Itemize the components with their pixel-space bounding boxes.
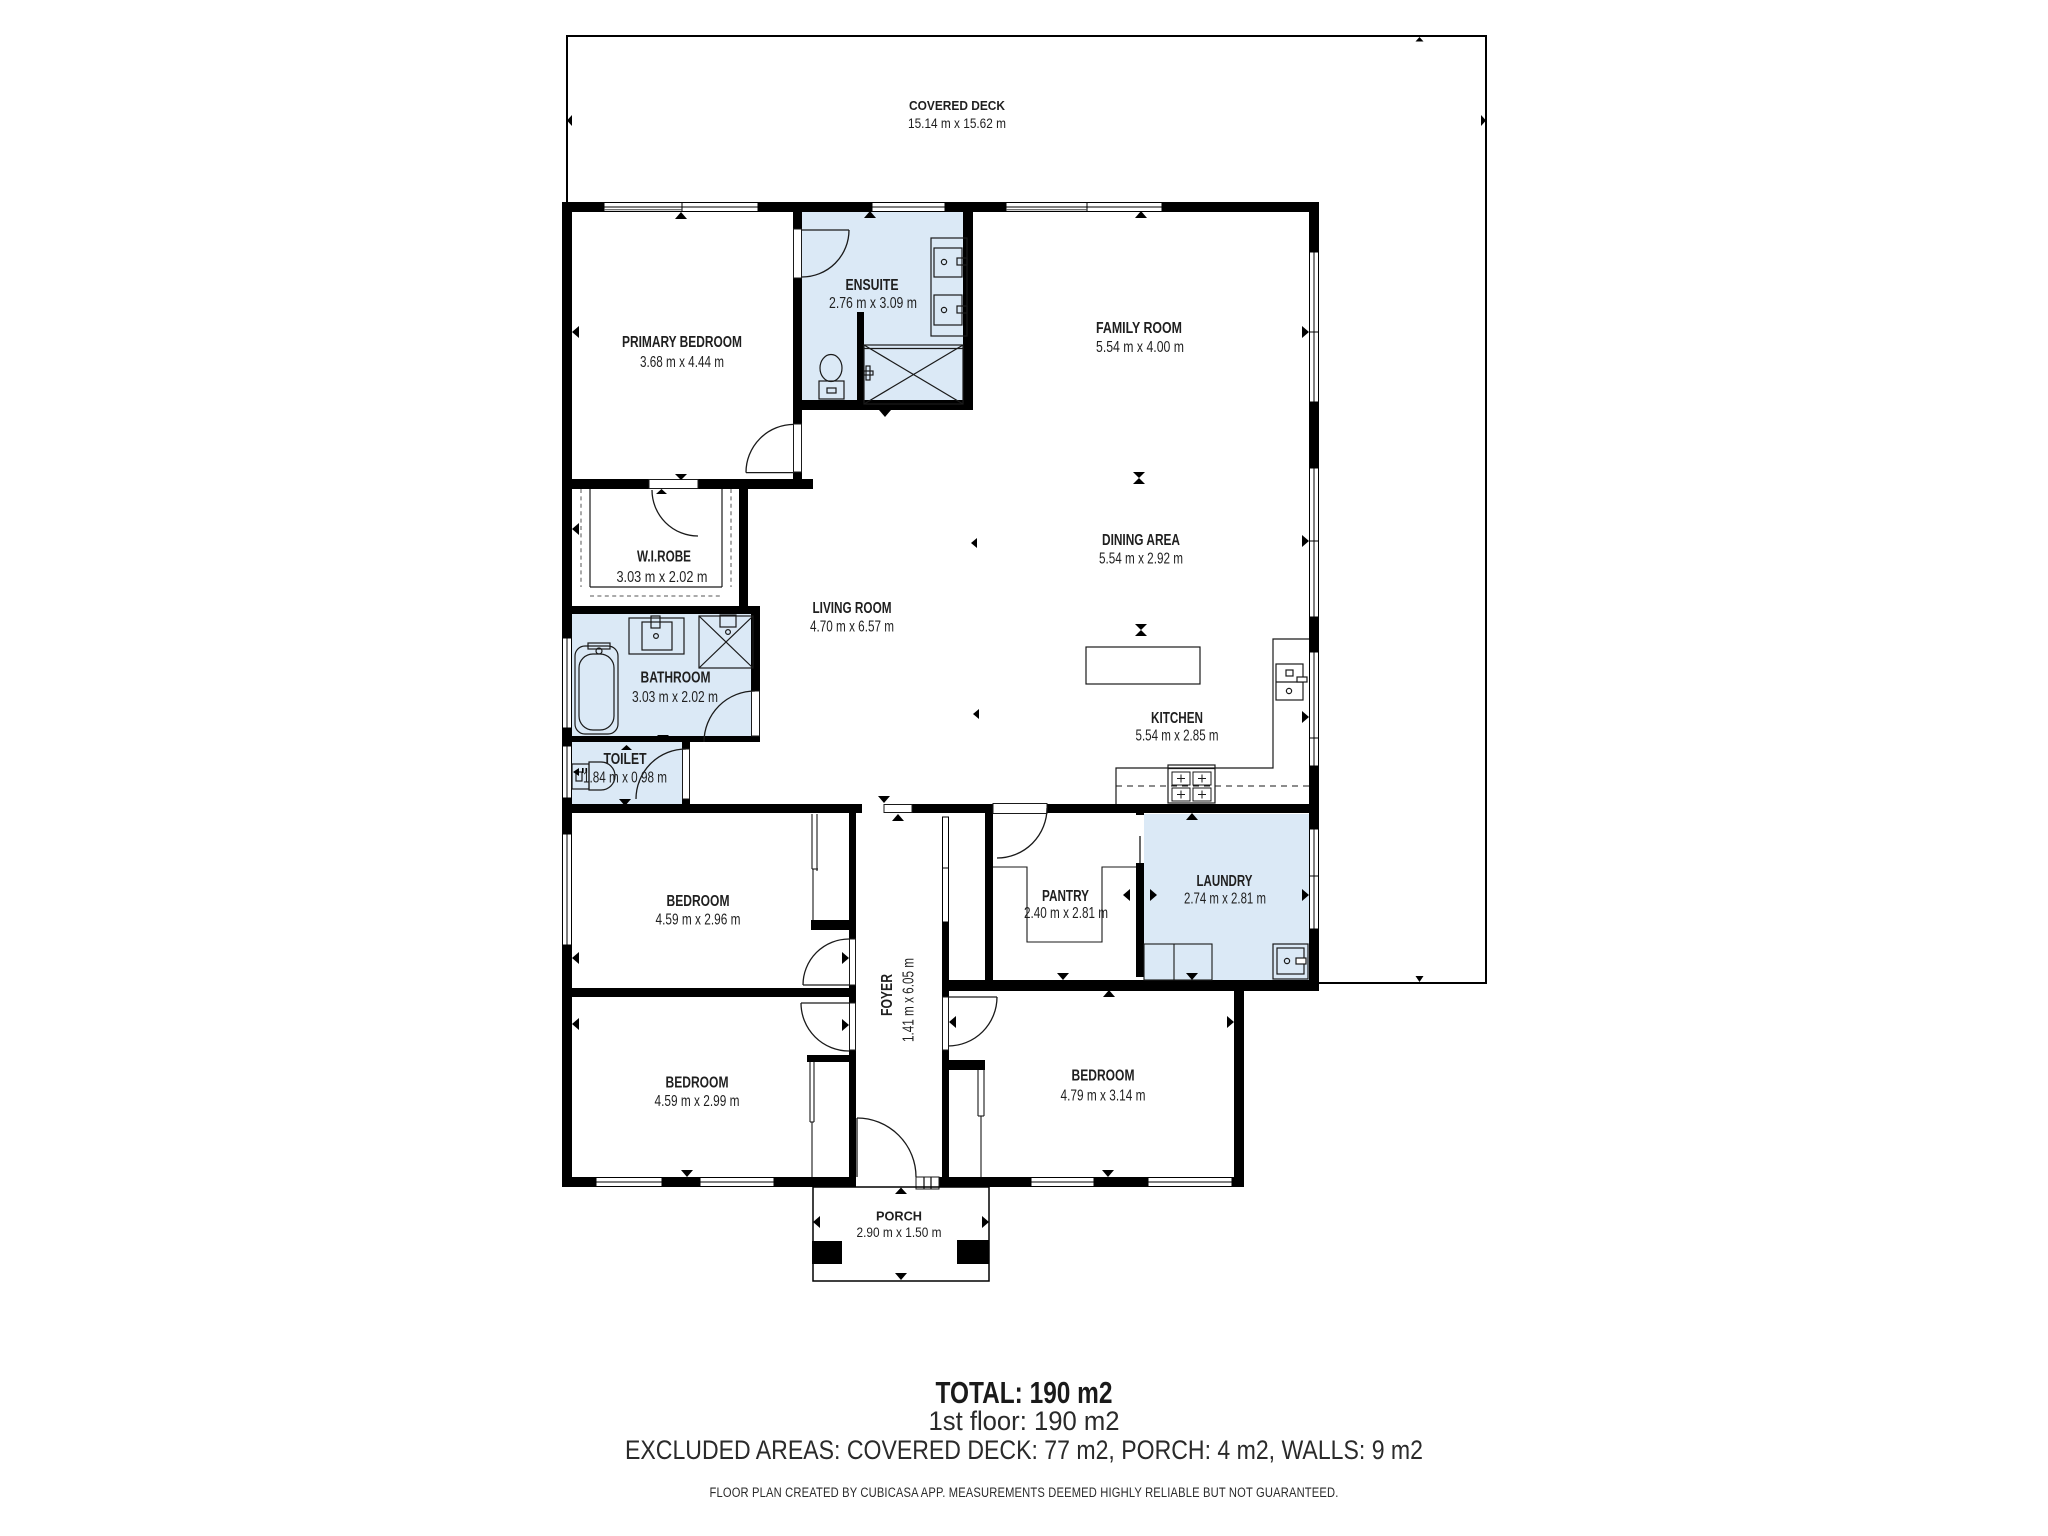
svg-text:4.70 m x 6.57 m: 4.70 m x 6.57 m (810, 619, 894, 636)
svg-text:KITCHEN: KITCHEN (1151, 710, 1203, 727)
svg-text:2.76 m x 3.09 m: 2.76 m x 3.09 m (829, 295, 917, 312)
svg-text:4.59 m x 2.96 m: 4.59 m x 2.96 m (656, 912, 741, 929)
svg-text:3.03 m x 2.02 m: 3.03 m x 2.02 m (617, 569, 708, 586)
svg-text:15.14 m x 15.62 m: 15.14 m x 15.62 m (908, 116, 1006, 131)
svg-text:2.74 m x 2.81 m: 2.74 m x 2.81 m (1184, 891, 1266, 908)
svg-text:BEDROOM: BEDROOM (666, 1075, 729, 1092)
svg-text:5.54 m x 2.92 m: 5.54 m x 2.92 m (1099, 551, 1183, 568)
svg-text:4.59 m x 2.99 m: 4.59 m x 2.99 m (655, 1093, 740, 1110)
svg-text:BEDROOM: BEDROOM (667, 893, 730, 910)
svg-text:PRIMARY BEDROOM: PRIMARY BEDROOM (622, 334, 742, 351)
svg-text:5.54 m x 2.85 m: 5.54 m x 2.85 m (1136, 728, 1219, 745)
svg-text:2.40 m x 2.81 m: 2.40 m x 2.81 m (1024, 905, 1108, 922)
svg-text:3.68 m x 4.44 m: 3.68 m x 4.44 m (640, 354, 724, 371)
svg-text:1.41 m x 6.05 m: 1.41 m x 6.05 m (901, 958, 918, 1042)
svg-text:LAUNDRY: LAUNDRY (1197, 873, 1253, 890)
svg-text:TOTAL: 190 m2: TOTAL: 190 m2 (936, 1375, 1113, 1410)
svg-text:FAMILY ROOM: FAMILY ROOM (1096, 320, 1182, 337)
svg-text:PANTRY: PANTRY (1042, 888, 1090, 905)
svg-text:EXCLUDED AREAS: COVERED DECK:: EXCLUDED AREAS: COVERED DECK: 77 m2, POR… (625, 1435, 1423, 1465)
svg-text:DINING AREA: DINING AREA (1102, 532, 1180, 549)
svg-text:BATHROOM: BATHROOM (641, 670, 711, 687)
svg-text:LIVING ROOM: LIVING ROOM (813, 600, 892, 617)
svg-text:3.03 m x 2.02 m: 3.03 m x 2.02 m (632, 689, 718, 706)
svg-text:BEDROOM: BEDROOM (1072, 1068, 1135, 1085)
svg-text:2.90 m x 1.50 m: 2.90 m x 1.50 m (857, 1225, 942, 1240)
svg-text:FOYER: FOYER (879, 974, 896, 1016)
svg-text:W.I.ROBE: W.I.ROBE (637, 549, 691, 566)
svg-text:ENSUITE: ENSUITE (846, 277, 899, 294)
svg-text:4.79 m x 3.14 m: 4.79 m x 3.14 m (1061, 1088, 1146, 1105)
svg-text:COVERED DECK: COVERED DECK (909, 98, 1006, 113)
svg-text:FLOOR PLAN CREATED BY CUBICASA: FLOOR PLAN CREATED BY CUBICASA APP. MEAS… (710, 1485, 1339, 1500)
svg-text:TOILET: TOILET (604, 751, 647, 768)
svg-text:5.54 m x 4.00 m: 5.54 m x 4.00 m (1096, 339, 1184, 356)
svg-text:PORCH: PORCH (876, 1209, 922, 1224)
svg-text:1.84 m x 0.98 m: 1.84 m x 0.98 m (583, 770, 667, 787)
svg-text:1st floor: 190 m2: 1st floor: 190 m2 (929, 1406, 1120, 1436)
